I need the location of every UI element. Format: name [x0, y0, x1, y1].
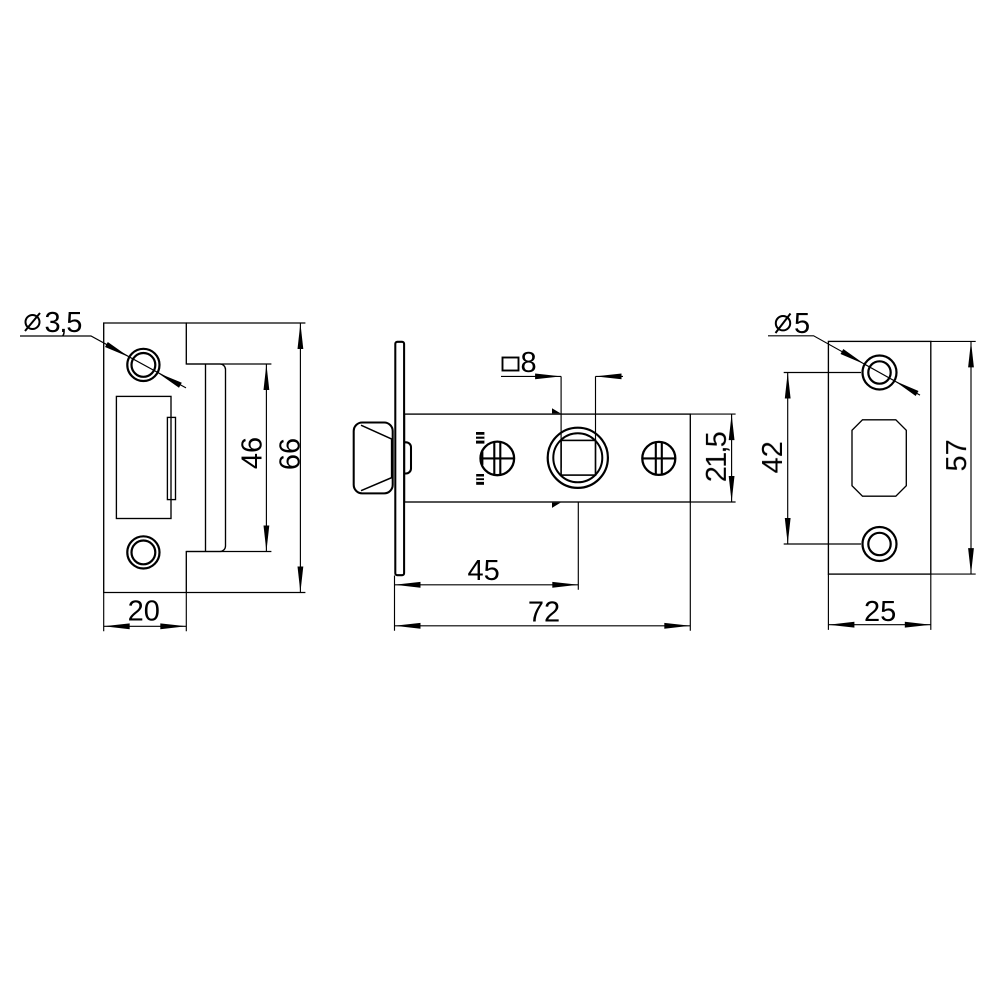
svg-text:5: 5	[794, 308, 810, 340]
svg-text:57: 57	[941, 439, 973, 471]
svg-text:72: 72	[528, 596, 560, 628]
svg-text:42: 42	[757, 441, 789, 473]
svg-text:25: 25	[864, 596, 896, 628]
svg-text:8: 8	[521, 347, 537, 379]
svg-text:21,5: 21,5	[701, 432, 733, 482]
svg-text:46: 46	[236, 437, 268, 469]
svg-text:66: 66	[274, 438, 306, 470]
svg-text:20: 20	[128, 595, 160, 627]
svg-text:3,5: 3,5	[45, 307, 82, 339]
svg-text:45: 45	[467, 555, 499, 587]
